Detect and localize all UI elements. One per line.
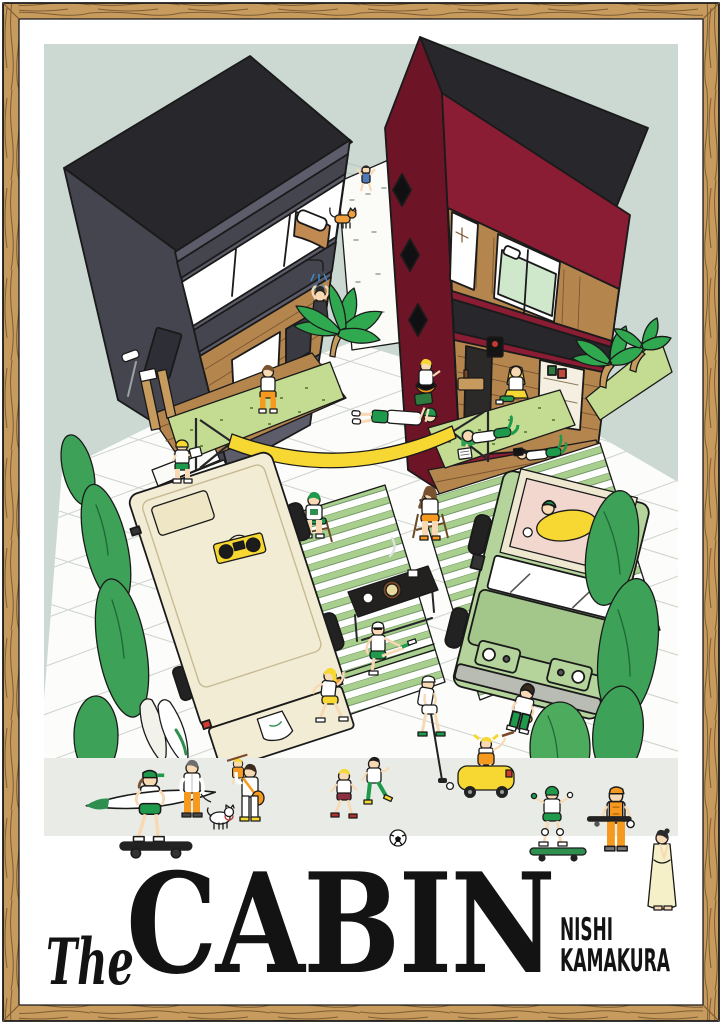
title-main: CABIN	[126, 842, 554, 1005]
golf-ball	[447, 783, 454, 790]
person-robe	[648, 828, 676, 910]
carried-skateboard	[587, 816, 632, 822]
right-cabin-fan-window	[450, 212, 478, 290]
title-script: The	[46, 925, 134, 1000]
subtitle-line2: KAMAKURA	[560, 943, 670, 979]
poster-artwork: The CABIN NISHI KAMAKURA	[0, 0, 722, 1024]
low-table	[458, 378, 484, 390]
poster-title: The CABIN NISHI KAMAKURA	[46, 842, 670, 1005]
